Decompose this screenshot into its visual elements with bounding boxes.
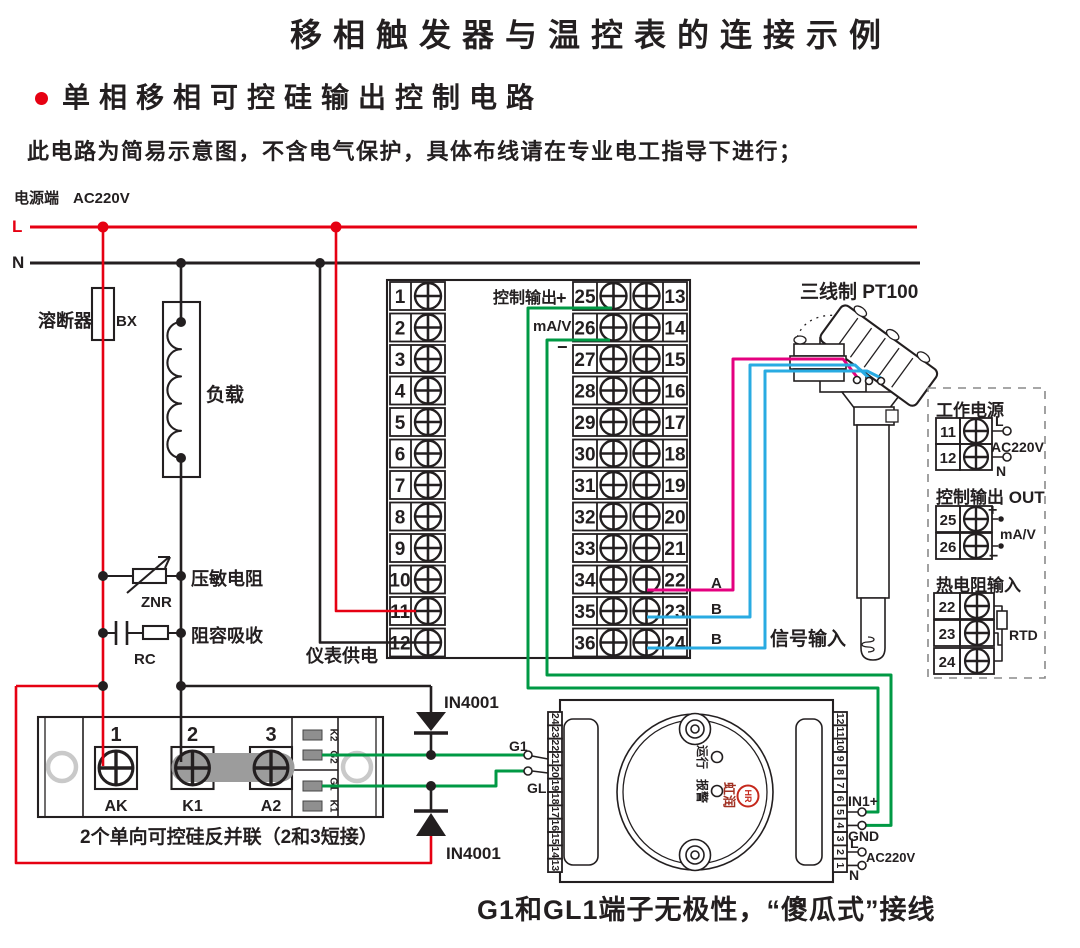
screw-icon bbox=[601, 504, 627, 530]
rtd-resistor-symbol bbox=[997, 611, 1007, 629]
terminal-number: 5 bbox=[395, 413, 406, 434]
l-terminal bbox=[858, 848, 866, 856]
terminal-number: 2 bbox=[395, 319, 406, 340]
circuit-diagram: 1 2 3 AK K1 A2 K2 G2 G1 K1 2个单向可控硅反并联（2和… bbox=[0, 0, 1080, 948]
terminal-number: 26 bbox=[574, 319, 595, 340]
terminal-number: 31 bbox=[574, 476, 596, 497]
terminal-number: 18 bbox=[549, 793, 561, 805]
terminal-number: 21 bbox=[664, 539, 686, 560]
pad-label-g1: G1 bbox=[328, 777, 339, 791]
terminal-number: 18 bbox=[664, 445, 685, 466]
terminal-number: 24 bbox=[549, 713, 561, 725]
screw-mount-icon bbox=[680, 840, 711, 871]
in1-terminal bbox=[858, 808, 866, 816]
terminal-number: 1 bbox=[834, 862, 846, 868]
diode-icon bbox=[416, 712, 446, 731]
panel-unit-label: mA/V bbox=[1000, 526, 1036, 542]
terminal-number: 15 bbox=[664, 350, 686, 371]
screw-icon bbox=[601, 315, 627, 341]
scr-caption: 2个单向可控硅反并联（2和3短接） bbox=[80, 825, 378, 848]
terminal-number: 9 bbox=[834, 756, 846, 762]
sensor-post bbox=[854, 377, 861, 384]
terminal-number: 27 bbox=[574, 350, 595, 371]
sensor-post bbox=[878, 378, 885, 385]
screw-icon bbox=[601, 472, 627, 498]
terminal-number: 11 bbox=[834, 726, 846, 737]
terminal-number: 25 bbox=[574, 287, 596, 308]
junction-dots bbox=[98, 222, 437, 792]
diode-bottom-label: IN4001 bbox=[446, 844, 501, 863]
varistor-label: 压敏电阻 bbox=[191, 568, 263, 589]
terminal-number: 11 bbox=[390, 602, 411, 623]
rc-code: RC bbox=[134, 651, 156, 668]
terminal-number: 20 bbox=[664, 508, 685, 529]
screw-icon bbox=[964, 507, 988, 531]
panel-power-title: 工作电源 bbox=[936, 400, 1004, 420]
panel-t25: 25 bbox=[940, 512, 957, 529]
terminal-number: 3 bbox=[395, 350, 406, 371]
screw-icon bbox=[601, 346, 627, 372]
scr-terminal-2: 2 bbox=[187, 724, 198, 746]
terminal-number: 22 bbox=[664, 571, 685, 592]
terminal-number: 22 bbox=[549, 740, 561, 752]
terminal-number: 16 bbox=[664, 382, 685, 403]
terminal-number: 20 bbox=[549, 766, 561, 778]
terminal-number: 10 bbox=[389, 571, 410, 592]
meter-supply-label: 仪表供电 bbox=[305, 645, 378, 666]
gl1-terminal bbox=[524, 767, 532, 775]
screw-mount-icon bbox=[680, 714, 711, 745]
terminal-number: 12 bbox=[834, 713, 846, 725]
screw-icon bbox=[601, 409, 627, 435]
trigger-left-strip: 242322212019181716151413 bbox=[548, 712, 562, 872]
terminal-number: 6 bbox=[834, 796, 846, 802]
panel-l-label: L bbox=[995, 413, 1004, 429]
screw-icon bbox=[601, 441, 627, 467]
trigger-l-label: L bbox=[850, 835, 859, 851]
screw-icon bbox=[634, 283, 660, 309]
terminal-number: 29 bbox=[574, 413, 595, 434]
n-terminal bbox=[858, 861, 866, 869]
terminal-number: 13 bbox=[664, 287, 685, 308]
screw-icon bbox=[601, 567, 627, 593]
terminal-number: 19 bbox=[549, 780, 561, 792]
screw-icon bbox=[415, 441, 441, 467]
screw-icon bbox=[415, 504, 441, 530]
terminal-number: 9 bbox=[395, 539, 406, 560]
screw-icon bbox=[415, 315, 441, 341]
panel-rtd-title: 热电阻输入 bbox=[936, 575, 1021, 595]
signal-input-label: 信号输入 bbox=[770, 627, 846, 650]
screw-icon bbox=[415, 567, 441, 593]
panel-t11: 11 bbox=[940, 424, 956, 441]
varistor-code: ZNR bbox=[141, 594, 172, 611]
terminal-number: 8 bbox=[834, 769, 846, 775]
terminal-number: 13 bbox=[549, 860, 561, 872]
screw-icon bbox=[415, 630, 441, 656]
screw-icon bbox=[601, 535, 627, 561]
panel-t23: 23 bbox=[939, 626, 956, 643]
terminal-number: 30 bbox=[574, 445, 595, 466]
brand-logo-text: HR bbox=[743, 790, 753, 803]
screw-icon bbox=[415, 409, 441, 435]
screw-icon bbox=[965, 594, 989, 618]
screw-icon bbox=[634, 409, 660, 435]
screw-icon bbox=[965, 649, 989, 673]
screw-icon bbox=[415, 378, 441, 404]
screw-icon bbox=[964, 419, 988, 443]
wiring-diagram-page: 移相触发器与温控表的连接示例 单相移相可控硅输出控制电路 此电路为简易示意图，不… bbox=[0, 0, 1080, 948]
terminal-number: 17 bbox=[549, 806, 561, 818]
screw-icon bbox=[415, 535, 441, 561]
terminal-number: 23 bbox=[664, 602, 685, 623]
terminal-number: 3 bbox=[834, 836, 846, 842]
terminal-number: 36 bbox=[574, 634, 595, 655]
reference-panel: 工作电源 11 12 L AC220V N 控制输出 OUT 25 26 + m… bbox=[928, 388, 1045, 678]
pt100-sensor: 三线制 PT100 bbox=[790, 280, 944, 660]
scr-terminal-3-name: A2 bbox=[261, 798, 282, 815]
pad-label-k1: K1 bbox=[328, 800, 339, 813]
alarm-led-label: 报警 bbox=[695, 779, 710, 803]
scr-terminal-3: 3 bbox=[265, 724, 276, 746]
screw-icon bbox=[634, 598, 660, 624]
main-terminal-block: 1251322614327154281652917630187311983220… bbox=[387, 280, 690, 658]
unit-label: mA/V bbox=[533, 318, 571, 335]
screw-icon bbox=[634, 315, 660, 341]
screw-icon bbox=[601, 598, 627, 624]
load-label: 负载 bbox=[206, 383, 244, 406]
terminal-number: 21 bbox=[549, 753, 561, 765]
wire-b1-label: B bbox=[711, 601, 722, 618]
screw-icon bbox=[634, 346, 660, 372]
terminal-number: 33 bbox=[574, 539, 595, 560]
diode-icon bbox=[416, 813, 446, 836]
screw-icon bbox=[634, 472, 660, 498]
fuse-code: BX bbox=[116, 313, 137, 330]
panel-rtd-label: RTD bbox=[1009, 627, 1038, 643]
plus-label: + bbox=[556, 288, 567, 308]
panel-plus-label: + bbox=[988, 502, 997, 519]
terminal-number: 35 bbox=[574, 602, 596, 623]
screw-icon bbox=[634, 630, 660, 656]
screw-icon bbox=[601, 283, 627, 309]
screw-icon bbox=[634, 535, 660, 561]
terminal-number: 2 bbox=[834, 849, 846, 855]
gate-pad bbox=[303, 801, 322, 811]
g1-label: G1 bbox=[509, 738, 528, 754]
terminal-number: 4 bbox=[395, 382, 406, 403]
terminal-number: 8 bbox=[395, 508, 406, 529]
screw-icon bbox=[415, 283, 441, 309]
scr-terminal-1-name: AK bbox=[104, 798, 128, 815]
scr-terminal-1: 1 bbox=[110, 724, 121, 746]
in1-label: IN1+ bbox=[848, 793, 878, 809]
screw-icon bbox=[965, 621, 989, 645]
sensor-label: 三线制 PT100 bbox=[800, 280, 918, 303]
run-led-label: 运行 bbox=[695, 745, 710, 769]
terminal-number: 5 bbox=[834, 809, 846, 815]
rc-label: 阻容吸收 bbox=[191, 625, 263, 646]
panel-t22: 22 bbox=[939, 599, 956, 616]
panel-t24: 24 bbox=[939, 654, 956, 671]
screw-icon bbox=[254, 751, 288, 785]
wire-b2-label: B bbox=[711, 631, 722, 648]
screw-icon bbox=[634, 441, 660, 467]
terminal-number: 4 bbox=[834, 822, 846, 828]
pad-label-g2: G2 bbox=[328, 750, 339, 764]
terminal-number: 32 bbox=[574, 508, 595, 529]
diode-top-label: IN4001 bbox=[444, 693, 499, 712]
trigger-n-label: N bbox=[849, 867, 859, 883]
gate-pad bbox=[303, 781, 322, 791]
terminal-number: 23 bbox=[549, 726, 561, 738]
terminal-number: 1 bbox=[395, 287, 406, 308]
trigger-module: 242322212019181716151413 121110987654321… bbox=[548, 700, 915, 883]
terminal-number: 28 bbox=[574, 382, 595, 403]
varistor-symbol bbox=[133, 569, 166, 583]
screw-icon bbox=[415, 472, 441, 498]
fuse-label: 溶断器 bbox=[38, 310, 93, 331]
terminal-number: 12 bbox=[389, 634, 410, 655]
control-output-label: 控制输出 bbox=[493, 288, 557, 307]
screw-icon bbox=[601, 630, 627, 656]
gate-pad bbox=[303, 730, 322, 740]
brand-label: 虹润 bbox=[722, 782, 737, 808]
terminal-number: 19 bbox=[664, 476, 685, 497]
screw-icon bbox=[964, 534, 988, 558]
trigger-right-strip: 121110987654321 bbox=[833, 712, 847, 872]
terminal-number: 7 bbox=[834, 782, 846, 788]
panel-t12: 12 bbox=[940, 450, 957, 467]
screw-icon bbox=[415, 346, 441, 372]
screw-icon bbox=[415, 598, 441, 624]
panel-n-label: N bbox=[996, 463, 1006, 479]
terminal-number: 34 bbox=[574, 571, 596, 592]
screw-icon bbox=[634, 378, 660, 404]
screw-icon bbox=[634, 504, 660, 530]
terminal-number: 7 bbox=[395, 476, 406, 497]
screw-icon bbox=[964, 445, 988, 469]
power-rails bbox=[30, 227, 920, 263]
terminal-number: 10 bbox=[834, 740, 846, 752]
pad-label-k2: K2 bbox=[328, 729, 339, 742]
resistor-symbol bbox=[143, 626, 168, 639]
scr-module: 1 2 3 AK K1 A2 K2 G2 G1 K1 2个单向可控硅反并联（2和… bbox=[38, 717, 383, 848]
trigger-ac-label: AC220V bbox=[866, 850, 915, 865]
terminal-number: 14 bbox=[664, 319, 686, 340]
terminal-number: 17 bbox=[664, 413, 685, 434]
capacitor-symbol bbox=[116, 621, 127, 645]
terminal-number: 15 bbox=[549, 833, 561, 845]
gate-pad bbox=[303, 750, 322, 760]
panel-ac-label: AC220V bbox=[991, 439, 1045, 455]
terminal-number: 16 bbox=[549, 820, 561, 832]
scr-terminal-2-name: K1 bbox=[182, 798, 203, 815]
sensor-post bbox=[866, 378, 873, 385]
terminal-number: 6 bbox=[395, 445, 406, 466]
screw-icon bbox=[601, 378, 627, 404]
terminal-number: 14 bbox=[549, 846, 561, 858]
terminal-number: 24 bbox=[664, 634, 686, 655]
wire-a-label: A bbox=[711, 575, 722, 592]
panel-t26: 26 bbox=[940, 539, 957, 556]
panel-minus-label: − bbox=[989, 548, 998, 565]
